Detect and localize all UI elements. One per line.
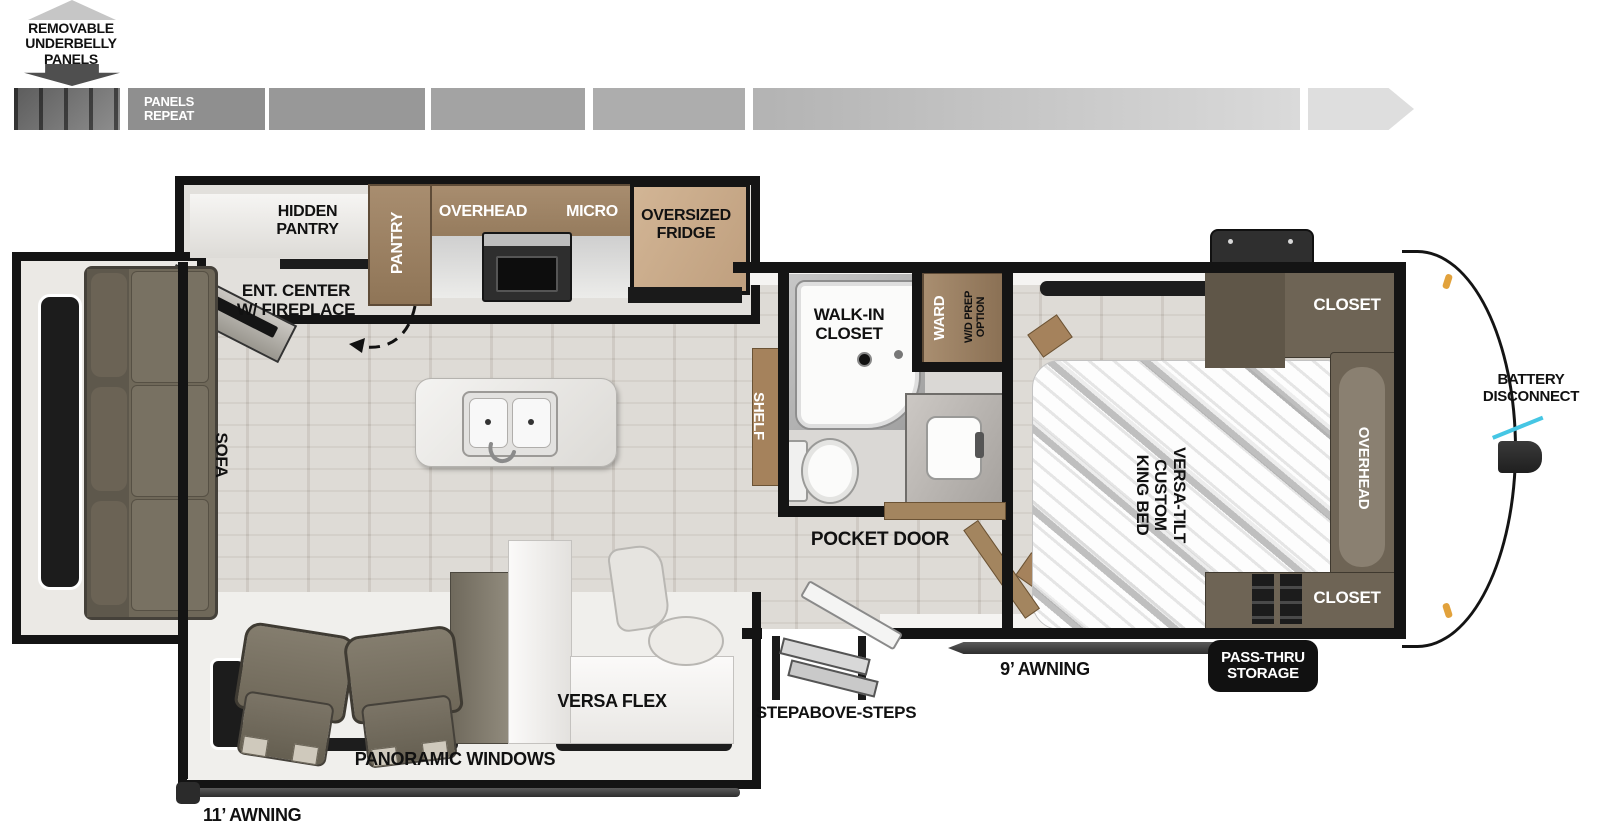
bath-wall-left	[778, 268, 789, 517]
bath-wall-ward-divider-h	[912, 362, 1013, 372]
faucet-icon	[488, 442, 518, 466]
sofa-back-cushion	[91, 273, 127, 377]
underbelly-panel-6	[753, 88, 1300, 130]
sofa-seat-cushion	[131, 271, 209, 383]
pass-thru-storage-badge: PASS-THRU STORAGE	[1208, 640, 1318, 692]
rear-window-icon	[38, 294, 82, 590]
sofa-label: SOFA	[211, 420, 231, 490]
fridge-label: OVERSIZED FRIDGE	[634, 207, 738, 242]
theater-chair	[226, 621, 351, 768]
floorplan-canvas: REMOVABLE UNDERBELLY PANELS PANELS REPEA…	[0, 0, 1600, 832]
top-wall	[733, 262, 1402, 273]
theater-chair	[342, 625, 463, 769]
underbelly-panel-4	[431, 88, 585, 130]
bed-label: VERSA-TILT CUSTOM KING BED	[1129, 410, 1191, 580]
fridge-base	[628, 287, 742, 303]
awning-rear-bar	[192, 788, 740, 797]
overhead-kitchen-label: OVERHEAD	[428, 203, 538, 221]
panoramic-windows-label: PANORAMIC WINDOWS	[340, 750, 570, 770]
sofa-seat-cushion	[131, 499, 209, 611]
shower-drain-icon	[857, 352, 872, 367]
wd-prep-label: W/D PREP OPTION	[962, 275, 988, 359]
dresser-icon	[1280, 574, 1302, 624]
panels-repeat-label: PANELS REPEAT	[128, 95, 194, 124]
bottom-wall-main	[876, 628, 1402, 639]
pocket-door-label: POCKET DOOR	[800, 530, 960, 551]
underbelly-panel-arrow-icon	[1308, 88, 1414, 130]
steps-label: STEPABOVE-STEPS	[742, 704, 930, 723]
bath-wall-right	[1002, 268, 1013, 517]
pantry-label: PANTRY	[388, 197, 408, 289]
awning-rear-endcap-icon	[176, 782, 200, 804]
awning-rear-label: 11’ AWNING	[203, 806, 328, 826]
entry-step-rail	[772, 636, 780, 700]
sofa-back-cushion	[91, 387, 127, 491]
stool-icon	[648, 616, 724, 666]
underbelly-label: REMOVABLE UNDERBELLY PANELS	[6, 21, 136, 67]
rear-wall	[178, 262, 188, 779]
awning-front-label: 9’ AWNING	[980, 660, 1110, 680]
closet-top-wedge	[1205, 268, 1285, 368]
micro-label: MICRO	[552, 203, 632, 221]
toilet-bowl-icon	[801, 438, 859, 504]
sofa	[84, 266, 218, 620]
corridor-wall	[1002, 517, 1013, 638]
versa-flex-desk-vertical	[508, 540, 572, 744]
oven-window-icon	[496, 256, 558, 292]
ent-center-label: ENT. CENTER W/ FIREPLACE	[222, 282, 370, 319]
bottom-wall-left-stub	[742, 628, 762, 639]
closet-bottom-label: CLOSET	[1302, 589, 1392, 608]
bath-wall-ward-divider-v	[912, 268, 922, 372]
hidden-pantry-label: HIDDEN PANTRY	[240, 203, 375, 238]
closet-top-label: CLOSET	[1300, 296, 1394, 315]
pass-thru-storage-label: PASS-THRU STORAGE	[1221, 650, 1305, 683]
underbelly-panel-1	[14, 88, 120, 130]
sofa-back-cushion	[91, 501, 127, 605]
underbelly-panel-3	[269, 88, 425, 130]
ward-label: WARD	[931, 276, 949, 360]
bath-sink-icon	[926, 416, 982, 480]
shower-head-icon	[894, 350, 903, 359]
shelf-label: SHELF	[749, 368, 767, 464]
underbelly-panel-5	[593, 88, 745, 130]
dresser-icon	[1252, 574, 1274, 624]
hitch-icon	[1498, 441, 1542, 473]
sofa-seat-cushion	[131, 385, 209, 497]
walk-in-closet-label: WALK-IN CLOSET	[790, 306, 908, 343]
versa-flex-label: VERSA FLEX	[548, 692, 676, 712]
underbelly-up-arrow-icon	[28, 0, 116, 20]
underbelly-panel-2: PANELS REPEAT	[128, 88, 265, 130]
bath-faucet-icon	[975, 432, 984, 458]
overhead-bedroom-label: OVERHEAD	[1354, 412, 1372, 524]
battery-disconnect-label: BATTERY DISCONNECT	[1462, 372, 1600, 405]
front-wall	[1394, 262, 1406, 639]
pocket-door-panel	[884, 502, 1006, 520]
underbelly-down-arrow-icon	[24, 64, 120, 86]
